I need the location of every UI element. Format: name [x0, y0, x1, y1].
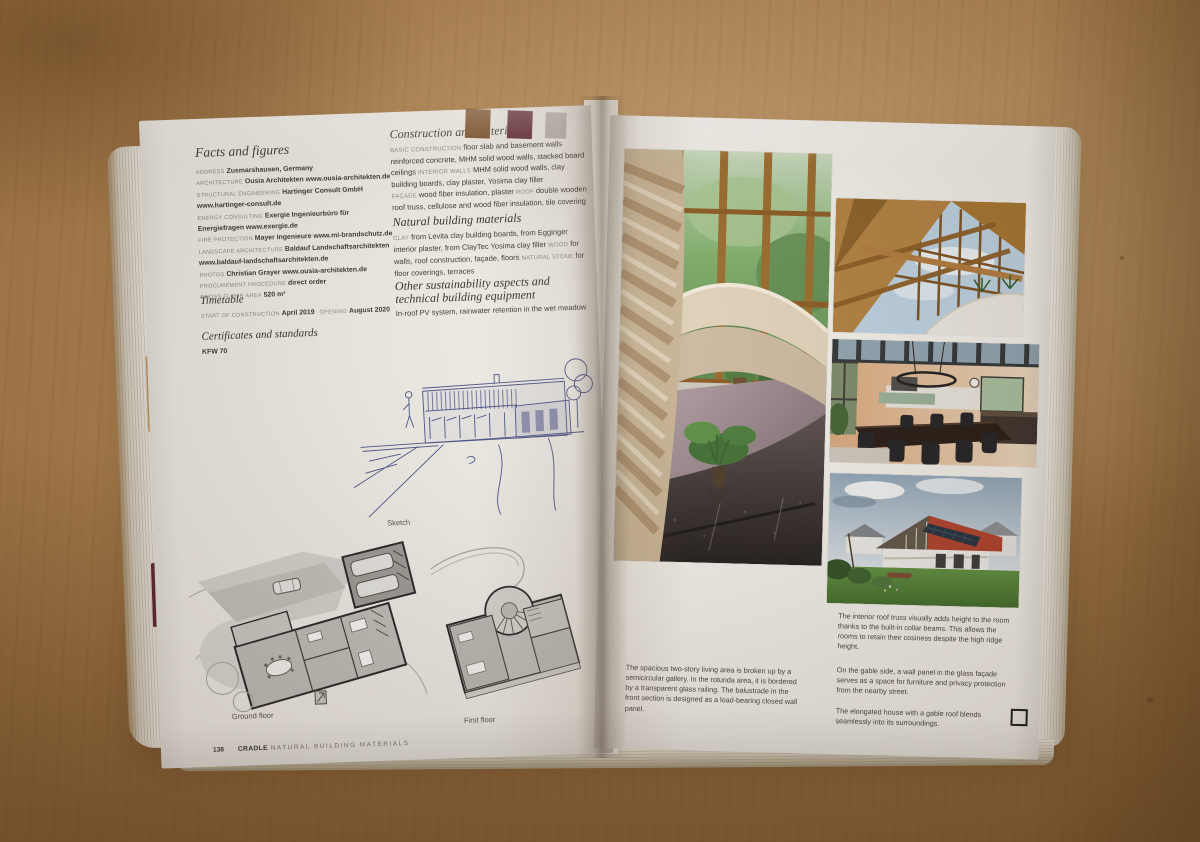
left-page-footer: 138 CRADLENATURAL BUILDING MATERIALS: [213, 740, 410, 754]
caption-gable: On the gable side, a wall panel in the g…: [836, 665, 1009, 700]
chapter-mark-gray: [545, 112, 567, 139]
certificates-heading: Certificates and standards: [201, 327, 318, 343]
concept-sketch-drawing: [345, 341, 603, 522]
photo-rotunda-interior: [614, 148, 833, 565]
page-number: 138: [213, 746, 224, 753]
chapter-mark-maroon: [507, 110, 533, 139]
timetable-line: START OF CONSTRUCTIONApril 2019 OPENINGA…: [201, 304, 399, 322]
photo-house-exterior: [827, 473, 1022, 608]
facts-heading: Facts and figures: [195, 142, 290, 161]
photo-roof-truss: [833, 198, 1026, 337]
ground-floor-label: Ground floor: [232, 711, 274, 721]
right-page: The spacious two-story living area is br…: [594, 115, 1055, 759]
natural-materials-heading: Natural building materials: [392, 212, 521, 230]
chapter-mark-brown: [465, 109, 491, 139]
running-footer: CRADLENATURAL BUILDING MATERIALS: [238, 740, 410, 753]
first-floor-plan: [422, 533, 608, 719]
caption-exterior: The elongated house with a gable roof bl…: [835, 706, 1007, 731]
photo-dining-room: [829, 339, 1039, 467]
facts-list: ADDRESSZusmarshausen, Germany ARCHITECTU…: [196, 160, 399, 304]
left-page: Facts and figures ADDRESSZusmarshausen, …: [139, 105, 613, 768]
caption-rotunda: The spacious two-story living area is br…: [625, 663, 804, 718]
construction-heading: Construction and materials: [389, 124, 521, 142]
first-floor-label: First floor: [464, 715, 496, 725]
natural-materials-paragraph: CLAYfrom Levita clay building boards, fr…: [393, 225, 593, 279]
north-arrow-icon: [315, 691, 326, 704]
construction-paragraph: BASIC CONSTRUCTIONfloor slab and basemen…: [390, 137, 590, 213]
caption-roof-truss: The interior roof truss visually adds he…: [837, 611, 1010, 656]
sustainability-heading: Other sustainability aspects and technic…: [395, 274, 571, 306]
end-of-article-marker-icon: [1010, 709, 1027, 726]
timetable-heading: Timetable: [200, 293, 244, 307]
ground-floor-plan: [182, 529, 438, 718]
sketch-label: Sketch: [387, 518, 410, 528]
photo-of-open-book: { "swatches": { "top_marks": ["#7a4d24",…: [0, 0, 1200, 842]
